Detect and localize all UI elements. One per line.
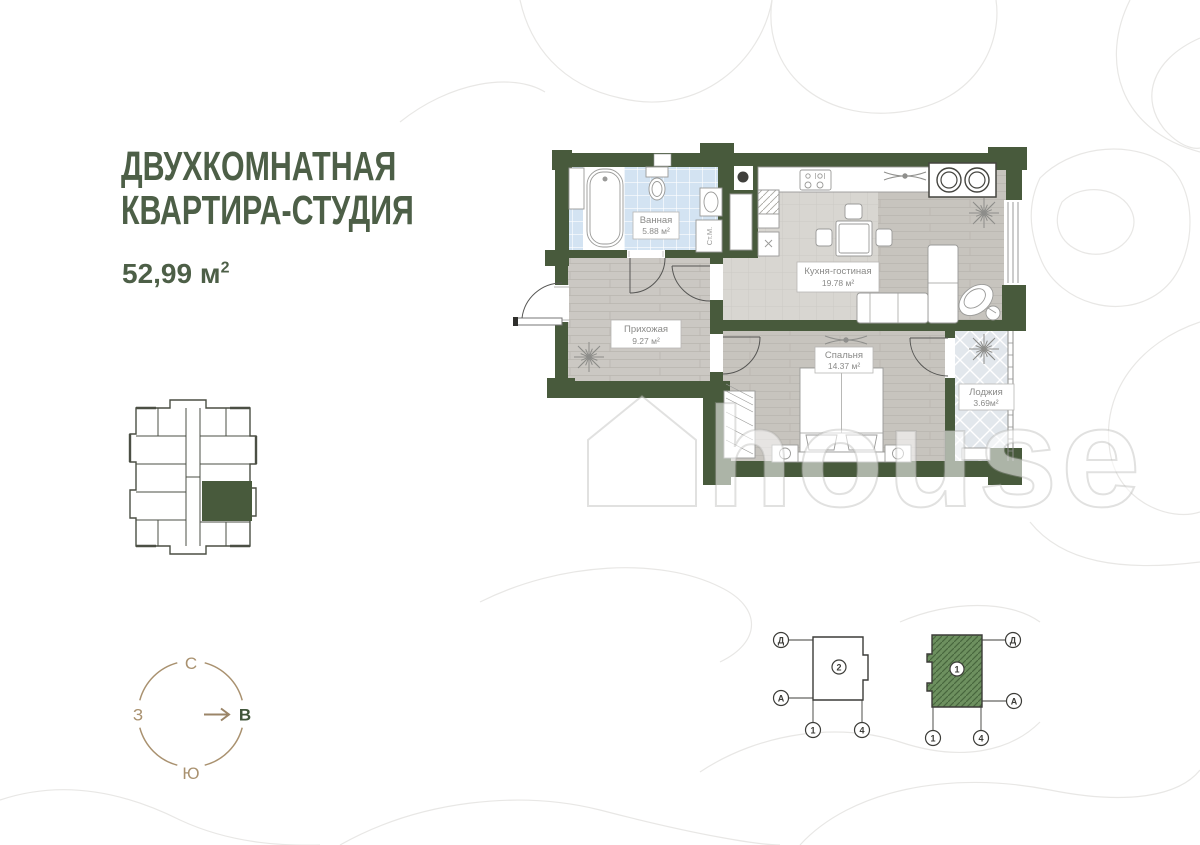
section-1-number: 1 [954,665,959,675]
compass: С З В Ю [128,645,263,785]
title-line-1: ДВУХКОМНАТНАЯ [121,144,414,188]
svg-text:Кухня-гостиная: Кухня-гостиная [804,266,871,277]
chair [876,229,892,246]
compass-west: З [133,706,143,725]
room-label-bathroom: Ванная 5.88 м² [633,212,679,239]
axis-label: Д [778,636,785,646]
east-arrow-icon [204,709,229,721]
vent-icon [738,172,749,183]
compass-south: Ю [182,764,199,783]
chair [845,204,862,219]
svg-text:9.27 м²: 9.27 м² [632,336,660,346]
room-label-hallway: Прихожая 9.27 м² [611,320,681,348]
washing-machine-label: Ст.М. [705,227,714,245]
pillow [806,435,837,450]
toilet-tank [646,167,668,177]
axis-label: А [778,694,785,704]
axis-label: 4 [978,734,983,744]
axis-label: А [1011,697,1018,707]
svg-text:Лоджия: Лоджия [969,387,1003,398]
section-diagram-1: 1 Д А 1 4 [926,633,1022,746]
svg-text:19.78 м²: 19.78 м² [822,278,854,288]
svg-text:5.88 м²: 5.88 м² [642,226,670,236]
section-2-number: 2 [836,663,841,673]
apartment-title: ДВУХКОМНАТНАЯ КВАРТИРА-СТУДИЯ [121,144,517,232]
compass-north: С [185,654,197,673]
room-label-bedroom: Спальня 14.37 м² [815,347,873,373]
room-label-kitchen: Кухня-гостиная 19.78 м² [797,262,879,292]
building-floor-mini-plan [108,378,278,573]
laundry-niche [929,163,996,197]
kitchen-counter [758,167,933,192]
svg-text:14.37 м²: 14.37 м² [828,361,860,371]
svg-text:Ванная: Ванная [640,215,673,226]
highlighted-apartment-unit [202,481,252,521]
total-area-sup: 2 [221,260,230,277]
floorplan-page: ДВУХКОМНАТНАЯ КВАРТИРА-СТУДИЯ 52,99 м2 [0,0,1200,845]
svg-text:Прихожая: Прихожая [624,324,668,335]
title-line-2: КВАРТИРА-СТУДИЯ [121,188,414,232]
room-label-loggia: Лоджия 3.69м² [959,384,1014,410]
axis-label: Д [1010,636,1017,646]
svg-text:3.69м²: 3.69м² [973,398,998,408]
svg-text:Спальня: Спальня [825,350,863,361]
headboard [797,452,886,462]
total-area-value: 52,99 м [122,258,221,289]
section-diagram-2: 2 Д А 1 4 [774,633,870,738]
total-area: 52,99 м2 [122,258,229,290]
axis-label: 4 [859,726,864,736]
loggia-bench [962,448,990,460]
closet [730,194,752,250]
compass-east: В [239,706,251,725]
axis-label: 1 [810,726,815,736]
chair [816,229,832,246]
sofa-chaise [928,245,958,323]
floor-plan: Ст.М. [505,135,1045,495]
niche [569,168,584,209]
axis-label: 1 [930,734,935,744]
section-diagrams: 2 Д А 1 4 1 Д А 1 4 [735,600,1045,770]
sofa-seat [857,293,928,323]
pillow [846,435,877,450]
entrance-door-leaf [516,318,562,325]
bathtub-faucet-icon [603,177,608,182]
